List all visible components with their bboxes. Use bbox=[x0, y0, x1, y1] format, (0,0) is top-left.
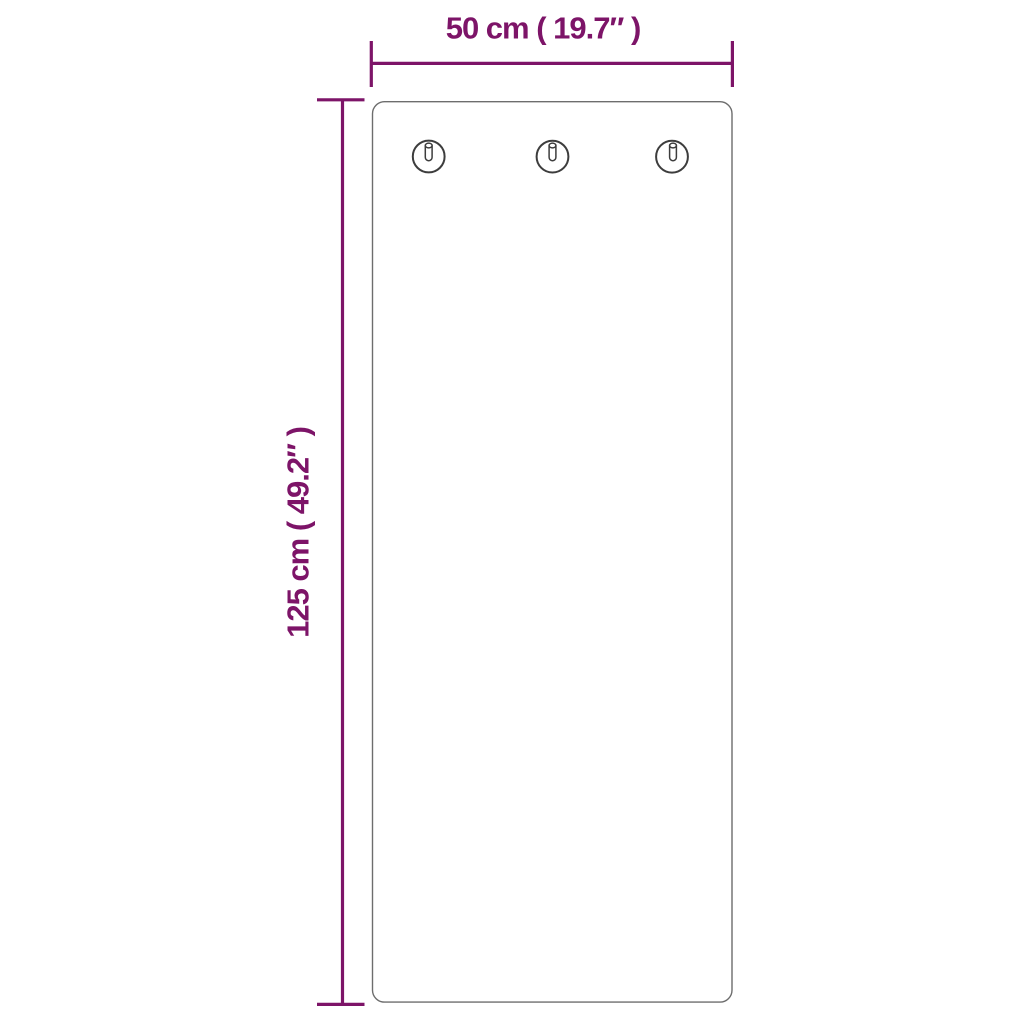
svg-text:125 cm ( 49.2″ ): 125 cm ( 49.2″ ) bbox=[281, 427, 316, 638]
svg-text:50 cm ( 19.7″ ): 50 cm ( 19.7″ ) bbox=[446, 11, 641, 46]
